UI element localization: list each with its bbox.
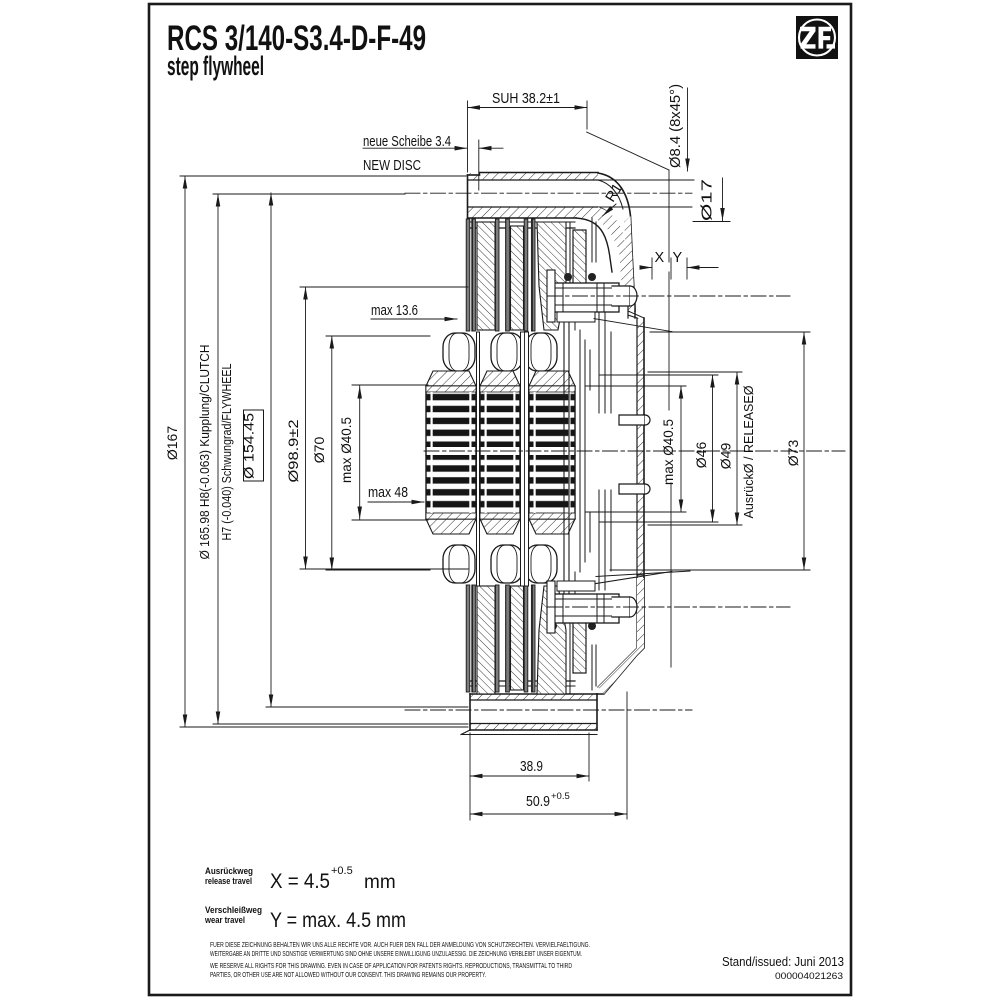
svg-text:Y = max. 4.5 mm: Y = max. 4.5 mm — [270, 909, 406, 932]
svg-text:AusrückØ / RELEASEØ: AusrückØ / RELEASEØ — [742, 385, 756, 518]
svg-text:H7 (-0.040) Schwungrad/FLYWHE: H7 (-0.040) Schwungrad/FLYWHEEL — [220, 363, 234, 540]
svg-text:000004021263: 000004021263 — [775, 971, 843, 982]
svg-text:wear travel: wear travel — [204, 915, 245, 926]
svg-text:WE RESERVE ALL RIGHTS FOR THIS: WE RESERVE ALL RIGHTS FOR THIS DRAWING. … — [210, 963, 572, 970]
svg-text:Ø73: Ø73 — [785, 440, 801, 467]
svg-text:step flywheel: step flywheel — [167, 51, 264, 81]
svg-text:+0.5: +0.5 — [551, 791, 570, 802]
svg-text:max 13.6: max 13.6 — [371, 303, 418, 319]
svg-text:Ø167: Ø167 — [164, 426, 180, 460]
svg-text:PARTIES, OR OTHER USE ARE NOT: PARTIES, OR OTHER USE ARE NOT ALLOWED WI… — [210, 972, 486, 979]
svg-text:max Ø40.5: max Ø40.5 — [660, 419, 676, 485]
svg-text:Ø17: Ø17 — [700, 179, 716, 221]
svg-text:Ø46: Ø46 — [693, 442, 709, 469]
svg-text:Ø98.9±2: Ø98.9±2 — [285, 419, 301, 482]
svg-text:release travel: release travel — [205, 876, 252, 887]
svg-text:Ø49: Ø49 — [718, 443, 734, 470]
svg-text:mm: mm — [364, 872, 396, 893]
svg-text:+0.5: +0.5 — [331, 865, 353, 877]
svg-text:X = 4.5: X = 4.5 — [270, 870, 330, 893]
svg-text:X: X — [655, 250, 665, 266]
svg-text:Ø8.4 (8x45°): Ø8.4 (8x45°) — [668, 84, 684, 168]
svg-text:neue Scheibe 3.4: neue Scheibe 3.4 — [363, 134, 451, 150]
svg-text:WEITERGABE AN DRITTE UND SONST: WEITERGABE AN DRITTE UND SONSTIGE VERWER… — [210, 951, 582, 958]
svg-text:NEW DISC: NEW DISC — [363, 158, 421, 174]
svg-text:Ø70: Ø70 — [311, 437, 327, 464]
svg-text:Stand/issued: Juni 2013: Stand/issued: Juni 2013 — [722, 954, 844, 969]
svg-text:Y: Y — [673, 250, 683, 266]
svg-text:50.9: 50.9 — [526, 794, 550, 810]
svg-text:FUER DIESE ZEICHNUNG BEHALTEN: FUER DIESE ZEICHNUNG BEHALTEN WIR UNS AL… — [210, 942, 590, 949]
svg-text:max Ø40.5: max Ø40.5 — [338, 417, 354, 483]
svg-text:max 48: max 48 — [368, 485, 408, 501]
svg-text:Ø 165.98 H8(-0.063) Kupplung/: Ø 165.98 H8(-0.063) Kupplung/CLUTCH — [198, 345, 212, 560]
svg-text:SUH 38.2±1: SUH 38.2±1 — [492, 91, 560, 107]
svg-text:38.9: 38.9 — [520, 759, 543, 775]
